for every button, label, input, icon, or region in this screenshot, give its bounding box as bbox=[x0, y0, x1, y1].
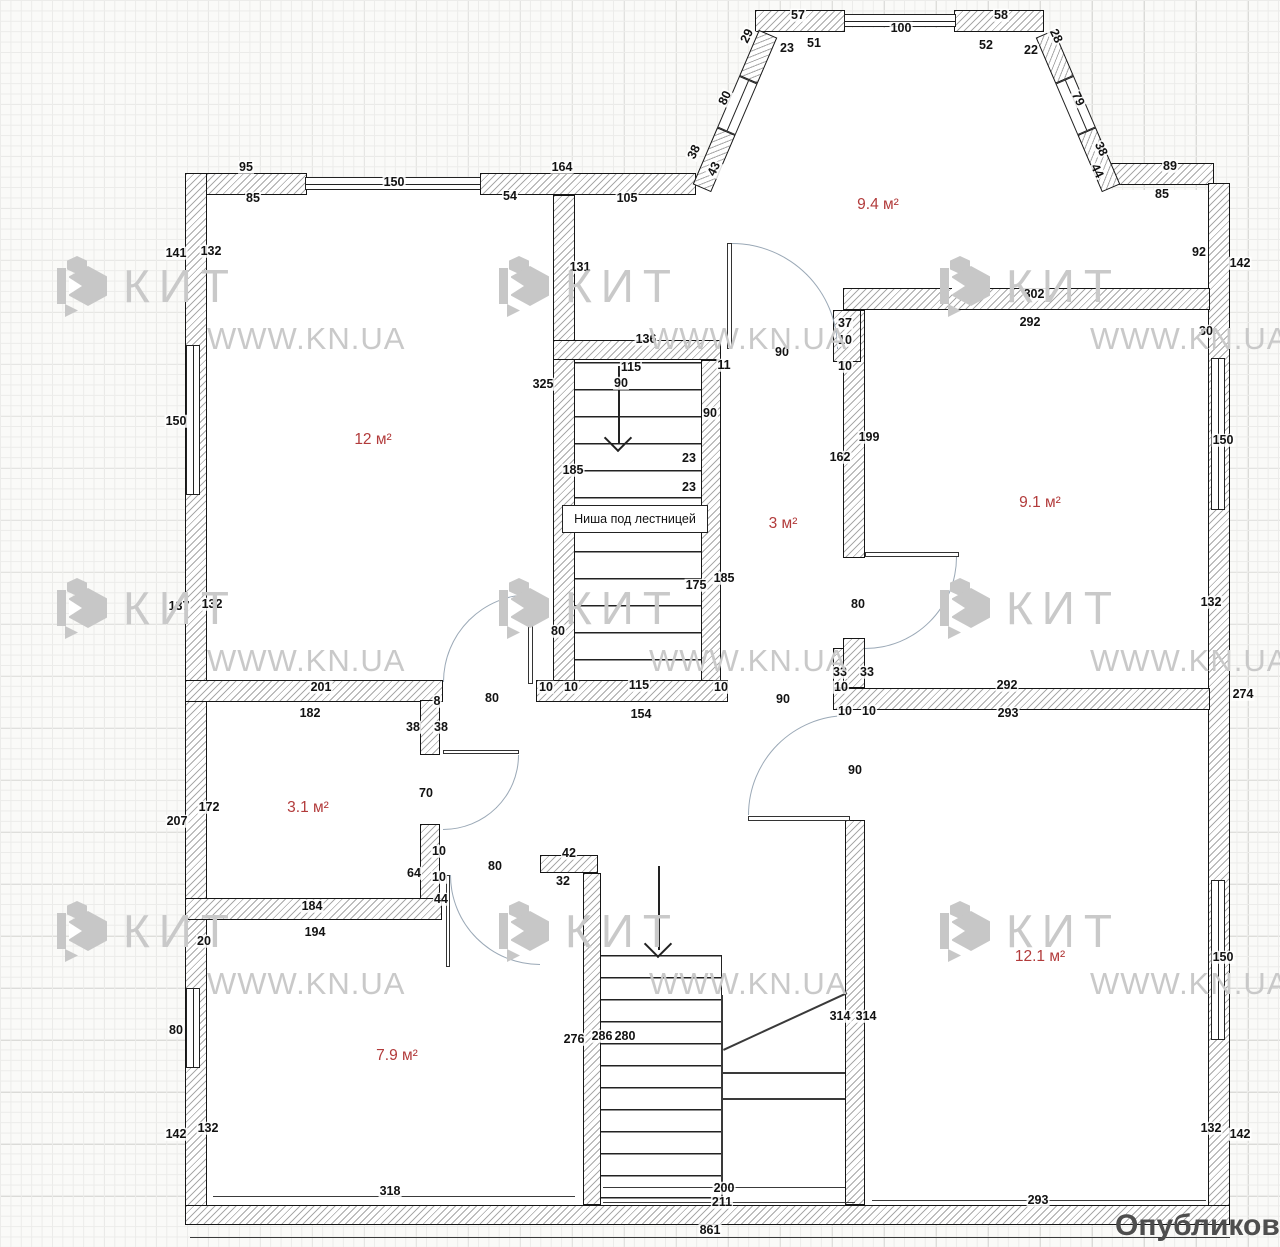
dim-label: 51 bbox=[806, 37, 822, 50]
dim-label: 142 bbox=[1229, 1128, 1252, 1141]
dim-label: 132 bbox=[200, 245, 223, 258]
dim-label: 325 bbox=[532, 378, 555, 391]
dim-label: 23 bbox=[681, 452, 697, 465]
dim-label: 10 bbox=[837, 705, 853, 718]
dim-label: 80 bbox=[487, 860, 503, 873]
window bbox=[186, 988, 200, 1068]
dim-label: 10 bbox=[833, 681, 849, 694]
dim-label: 314 bbox=[855, 1010, 878, 1023]
kit-logo-icon bbox=[497, 577, 557, 641]
watermark-brand: КИТ bbox=[1006, 581, 1121, 635]
dim-label: 314 bbox=[829, 1010, 852, 1023]
dim-label: 32 bbox=[555, 875, 571, 888]
dim-label: 175 bbox=[685, 579, 708, 592]
dim-label: 44 bbox=[433, 893, 449, 906]
dim-label: 80 bbox=[850, 598, 866, 611]
dim-label: 38 bbox=[433, 721, 449, 734]
dim-label: 90 bbox=[847, 764, 863, 777]
dim-label: 100 bbox=[890, 22, 913, 35]
dim-label: 10 bbox=[837, 360, 853, 373]
dim-label: 142 bbox=[1229, 257, 1252, 270]
dim-label: 292 bbox=[1019, 316, 1042, 329]
dim-label: 85 bbox=[245, 192, 261, 205]
dim-label: 141 bbox=[165, 247, 188, 260]
dim-label: 85 bbox=[1154, 188, 1170, 201]
dim-label: 132 bbox=[1200, 596, 1223, 609]
door-leaf bbox=[443, 750, 519, 754]
kit-logo-icon bbox=[55, 255, 115, 319]
watermark-site: WWW.KN.UA bbox=[207, 966, 405, 1002]
watermark-site: WWW.KN.UA bbox=[1090, 321, 1280, 357]
watermark-site: WWW.KN.UA bbox=[1090, 966, 1280, 1002]
dim-label: 10 bbox=[563, 681, 579, 694]
dim-label: 90 bbox=[702, 407, 718, 420]
dim-label: 142 bbox=[165, 1128, 188, 1141]
dim-label: 150 bbox=[165, 415, 188, 428]
dim-label: 132 bbox=[197, 1122, 220, 1135]
room-area-label: 12 м² bbox=[354, 431, 391, 449]
dim-label: 150 bbox=[1212, 434, 1235, 447]
dim-label: 8 bbox=[433, 695, 442, 708]
dimension-line bbox=[190, 1237, 1230, 1238]
dim-label: 132 bbox=[1200, 1122, 1223, 1135]
dim-label: 10 bbox=[431, 845, 447, 858]
dim-label: 293 bbox=[1027, 1194, 1050, 1207]
dim-label: 10 bbox=[431, 871, 447, 884]
watermark-site: WWW.KN.UA bbox=[1090, 643, 1280, 679]
floorplan-canvas: Ниша под лестницей 572951231005852222880… bbox=[0, 0, 1280, 1247]
room-area-label: 7.9 м² bbox=[376, 1047, 418, 1065]
watermark-site: WWW.KN.UA bbox=[207, 321, 405, 357]
dim-label: 182 bbox=[299, 707, 322, 720]
dim-label: 286 bbox=[591, 1030, 614, 1043]
dim-label: 23 bbox=[681, 481, 697, 494]
watermark-site: WWW.KN.UA bbox=[649, 321, 847, 357]
dim-label: 58 bbox=[993, 9, 1009, 22]
dim-label: 154 bbox=[630, 708, 653, 721]
dim-label: 184 bbox=[301, 900, 324, 913]
watermark-brand: КИТ bbox=[123, 904, 238, 958]
dim-label: 274 bbox=[1232, 688, 1255, 701]
watermark-site: WWW.KN.UA bbox=[649, 643, 847, 679]
dim-label: 80 bbox=[168, 1024, 184, 1037]
dim-label: 207 bbox=[166, 815, 189, 828]
dim-label: 115 bbox=[620, 361, 642, 374]
dim-label: 89 bbox=[1162, 160, 1178, 173]
watermark-brand: КИТ bbox=[123, 259, 238, 313]
kit-logo-icon bbox=[55, 577, 115, 641]
dim-label: 10 bbox=[713, 681, 729, 694]
dim-label: 52 bbox=[978, 39, 994, 52]
room-area-label: 9.1 м² bbox=[1019, 494, 1061, 512]
stair-flight-line bbox=[723, 1098, 845, 1100]
dim-label: 90 bbox=[775, 693, 791, 706]
dim-label: 64 bbox=[406, 867, 422, 880]
kit-logo-icon bbox=[497, 255, 557, 319]
dim-label: 200 bbox=[713, 1182, 736, 1195]
dim-label: 105 bbox=[616, 192, 639, 205]
stair-flight-line bbox=[721, 995, 723, 1205]
dim-label: 199 bbox=[858, 431, 881, 444]
watermark-brand: КИТ bbox=[565, 581, 680, 635]
watermark-site: WWW.KN.UA bbox=[207, 643, 405, 679]
door-leaf bbox=[748, 816, 850, 821]
kit-logo-icon bbox=[55, 900, 115, 964]
watermark-brand: КИТ bbox=[1006, 259, 1121, 313]
dim-label: 201 bbox=[310, 681, 333, 694]
dim-label: 11 bbox=[716, 359, 731, 372]
watermark-brand: КИТ bbox=[1006, 904, 1121, 958]
dim-label: 172 bbox=[198, 801, 221, 814]
dim-label: 57 bbox=[790, 9, 806, 22]
watermark-brand: КИТ bbox=[565, 259, 680, 313]
watermark-site: WWW.KN.UA bbox=[649, 966, 847, 1002]
dim-label: 33 bbox=[859, 666, 875, 679]
door-leaf bbox=[446, 875, 450, 967]
dim-label: 861 bbox=[699, 1224, 722, 1237]
kit-logo-icon bbox=[497, 900, 557, 964]
dim-label: 293 bbox=[997, 707, 1020, 720]
watermark-brand: КИТ bbox=[565, 904, 680, 958]
dim-label: 276 bbox=[563, 1033, 586, 1046]
dim-label: 95 bbox=[238, 161, 254, 174]
dim-label: 185 bbox=[562, 464, 585, 477]
watermark-brand: КИТ bbox=[123, 581, 238, 635]
dim-label: 42 bbox=[561, 847, 577, 860]
dim-label: 150 bbox=[383, 176, 406, 189]
dim-label: 10 bbox=[538, 681, 554, 694]
dim-label: 185 bbox=[713, 572, 736, 585]
dim-label: 164 bbox=[551, 161, 574, 174]
dim-label: 90 bbox=[613, 377, 629, 390]
dim-label: 23 bbox=[779, 42, 795, 55]
kit-logo-icon bbox=[938, 255, 998, 319]
room-area-label: 3.1 м² bbox=[287, 799, 329, 817]
dim-label: 115 bbox=[628, 679, 650, 692]
room-area-label: 3 м² bbox=[769, 515, 798, 533]
kit-logo-icon bbox=[938, 577, 998, 641]
dim-label: 38 bbox=[405, 721, 421, 734]
wall-segment bbox=[833, 688, 1210, 710]
dim-label: 54 bbox=[502, 190, 518, 203]
stair-flight-line bbox=[723, 1072, 845, 1074]
dim-label: 150 bbox=[1212, 951, 1235, 964]
dim-label: 162 bbox=[829, 451, 852, 464]
wall-segment bbox=[1104, 163, 1214, 185]
publish-button[interactable]: Опубликовать н bbox=[1115, 1209, 1280, 1243]
dim-label: 280 bbox=[614, 1030, 637, 1043]
dim-label: 10 bbox=[861, 705, 877, 718]
kit-logo-icon bbox=[938, 900, 998, 964]
dim-label: 292 bbox=[996, 679, 1019, 692]
dim-label: 80 bbox=[484, 692, 500, 705]
dim-label: 318 bbox=[379, 1185, 402, 1198]
dim-label: 211 bbox=[711, 1196, 733, 1209]
dim-label: 92 bbox=[1191, 246, 1207, 259]
dim-label: 194 bbox=[304, 926, 327, 939]
niche-label: Ниша под лестницей bbox=[562, 505, 708, 533]
dim-label: 70 bbox=[418, 787, 434, 800]
dim-label: 22 bbox=[1023, 44, 1039, 57]
room-area-label: 9.4 м² bbox=[857, 196, 899, 214]
window bbox=[186, 345, 200, 495]
